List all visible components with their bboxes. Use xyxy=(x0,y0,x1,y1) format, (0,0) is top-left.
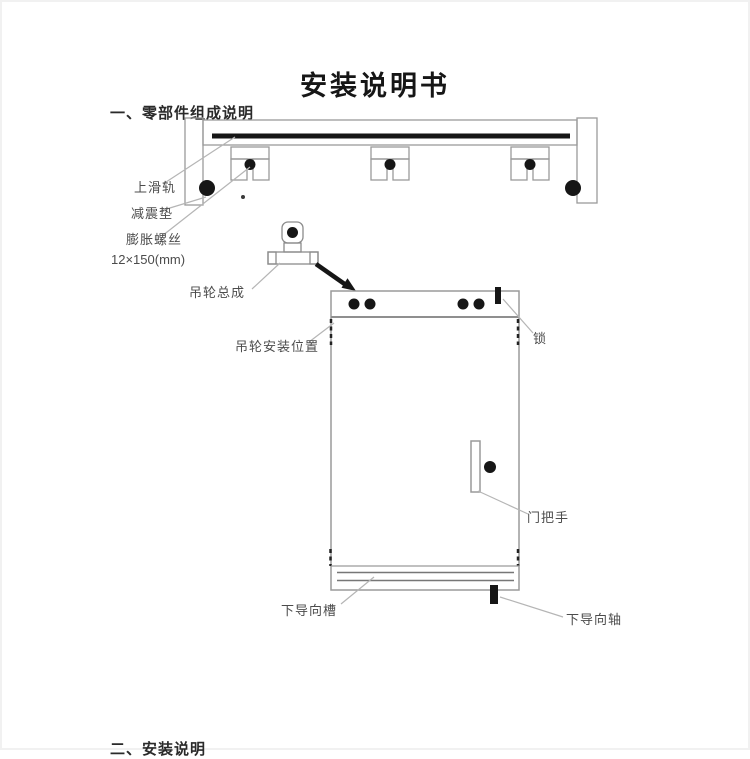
hanger-plate-left-tab xyxy=(268,252,276,264)
leader-bottom-guide-shaft xyxy=(500,597,563,617)
rail-bracket-2 xyxy=(371,147,409,180)
lock-bar xyxy=(495,287,501,304)
arrow-icon xyxy=(316,264,356,291)
label-bottom-guide-shaft: 下导向轴 xyxy=(566,609,622,628)
rail-assembly-drawing xyxy=(185,118,597,205)
installation-diagram xyxy=(0,0,750,750)
door-handle-knob-dot xyxy=(484,461,496,473)
label-screw-size: 12×150(mm) xyxy=(111,252,185,267)
hanger-wheel-dot xyxy=(287,227,298,238)
bottom-guide-shaft-bar xyxy=(490,585,498,604)
label-expansion-screw: 膨胀螺丝 xyxy=(126,229,182,248)
rail-bracket-1 xyxy=(231,147,269,180)
hanger-bolt-dot xyxy=(365,299,376,310)
label-bottom-guide-groove: 下导向槽 xyxy=(281,600,337,619)
label-door-handle: 门把手 xyxy=(527,507,569,526)
hanger-plate-right-tab xyxy=(310,252,318,264)
label-hanger-position: 吊轮安装位置 xyxy=(235,336,319,355)
leader-hanger-assembly xyxy=(252,263,280,289)
label-lock: 锁 xyxy=(533,328,547,347)
hanger-bolt-dot xyxy=(458,299,469,310)
rail-bracket-3 xyxy=(511,147,549,180)
hanger-assembly-drawing xyxy=(268,222,318,264)
expansion-screw-dot-right xyxy=(565,180,581,196)
rail-housing xyxy=(203,120,577,145)
section2-heading: 二、安装说明 xyxy=(110,738,206,759)
manual-page: 安装说明书 一、零部件组成说明 xyxy=(0,0,750,750)
door-panel xyxy=(331,291,519,590)
hanger-stem xyxy=(284,243,301,252)
expansion-screw-dot-left xyxy=(199,180,215,196)
label-shock-pad: 减震垫 xyxy=(131,203,173,222)
small-speck-dot xyxy=(241,195,245,199)
label-top-rail: 上滑轨 xyxy=(134,177,176,196)
hanger-bolt-dot xyxy=(349,299,360,310)
door-drawing xyxy=(331,287,520,604)
hanger-bolt-dot xyxy=(474,299,485,310)
label-hanger-assembly: 吊轮总成 xyxy=(189,282,245,301)
